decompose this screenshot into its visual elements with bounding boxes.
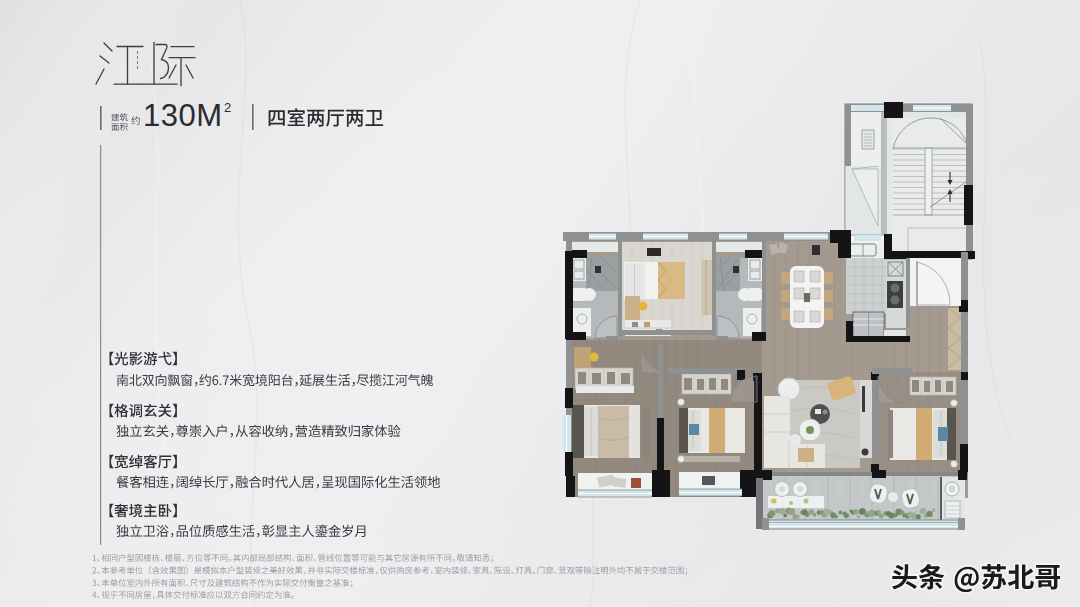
svg-text:2: 2 bbox=[224, 100, 231, 115]
svg-text:130M: 130M bbox=[143, 98, 223, 133]
